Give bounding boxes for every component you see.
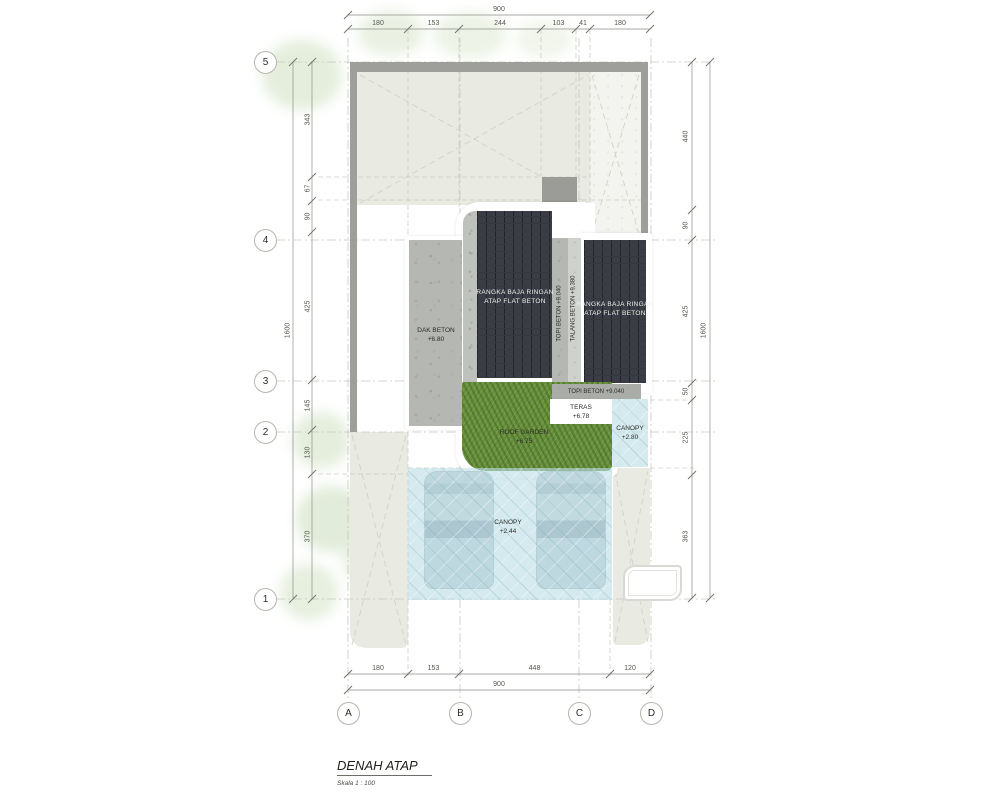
grid-col-b: B	[449, 702, 472, 725]
dim-right-overall: 1600	[700, 313, 709, 349]
dim-top-seg: 153	[408, 20, 459, 28]
dim-bottom-seg: 120	[610, 665, 650, 673]
garden-label-line2: +6.75	[484, 437, 564, 446]
grid-row-3: 3	[254, 370, 277, 393]
canopy-carport-label: CANOPY +2.44	[478, 518, 538, 536]
canopy-carport-line1: CANOPY	[478, 518, 538, 527]
dak-label-line2: +6.80	[406, 335, 466, 344]
dim-top-seg: 103	[541, 20, 576, 28]
dim-top-seg: 180	[590, 20, 650, 28]
roof2-label: RANGKA BAJA RINGAN ATAP FLAT BETON	[575, 300, 655, 318]
canopy-upper-line2: +2.80	[600, 433, 660, 442]
dim-top-seg: 41	[576, 20, 590, 28]
dim-top-overall: 900	[348, 6, 650, 14]
roof1-label-line2: ATAP FLAT BETON	[470, 297, 560, 306]
roof2-label-line2: ATAP FLAT BETON	[575, 309, 655, 318]
grid-col-c: C	[568, 702, 591, 725]
grid-row-2: 2	[254, 421, 277, 444]
canopy-upper-line1: CANOPY	[600, 424, 660, 433]
dim-bottom-overall: 900	[348, 681, 650, 689]
dim-left-seg: 130	[304, 435, 313, 471]
roof-plan-canvas: 900 180 153 244 103 41 180 180 153 448 1…	[0, 0, 1000, 800]
garden-label-line1: ROOF GARDEN	[484, 428, 564, 437]
dak-beton-label: DAK BETON +6.80	[406, 326, 466, 344]
dim-left-overall: 1600	[284, 313, 293, 349]
grid-col-a: A	[337, 702, 360, 725]
roof2-label-line1: RANGKA BAJA RINGAN	[575, 300, 655, 309]
teras-label-line2: +6.78	[551, 412, 611, 421]
dim-bottom-seg: 180	[348, 665, 408, 673]
teras-label: TERAS +6.78	[551, 403, 611, 421]
dim-top-seg: 180	[348, 20, 408, 28]
dim-bottom-seg: 153	[408, 665, 459, 673]
dim-left-seg: 370	[304, 519, 313, 555]
grid-row-4: 4	[254, 229, 277, 252]
dim-left-seg: 425	[304, 289, 313, 325]
canopy-carport-line2: +2.44	[478, 527, 538, 536]
dim-right-seg: 425	[682, 294, 691, 330]
dim-left-seg: 90	[304, 199, 313, 235]
drawing-title: DENAH ATAP	[337, 758, 432, 776]
topi-beton-bar-label: TOPI BETON +9.040	[551, 388, 641, 396]
dim-left-seg: 343	[304, 102, 313, 138]
dak-label-line1: DAK BETON	[406, 326, 466, 335]
roof-garden-label: ROOF GARDEN +6.75	[484, 428, 564, 446]
dim-top-seg: 244	[459, 20, 541, 28]
drawing-scale: Skala 1 : 100	[337, 780, 375, 787]
topi-beton-vertical-label: TOPI BETON +9.040	[556, 272, 565, 356]
dim-bottom-seg: 448	[459, 665, 610, 673]
dim-right-seg: 90	[682, 208, 691, 244]
grid-row-1: 1	[254, 588, 277, 611]
teras-label-line1: TERAS	[551, 403, 611, 412]
grid-row-5: 5	[254, 51, 277, 74]
talang-beton-vertical-label: TALANG BETON +9.380	[570, 267, 579, 351]
grid-col-d: D	[640, 702, 663, 725]
dim-right-seg: 50	[682, 374, 691, 410]
linework-dimensions	[0, 0, 1000, 800]
canopy-upper-label: CANOPY +2.80	[600, 424, 660, 442]
dim-left-seg: 145	[304, 388, 313, 424]
dim-right-seg: 363	[682, 519, 691, 555]
dim-right-seg: 440	[682, 119, 691, 155]
roof1-label-line1: RANGKA BAJA RINGAN	[470, 288, 560, 297]
roof1-label: RANGKA BAJA RINGAN ATAP FLAT BETON	[470, 288, 560, 306]
dim-right-seg: 225	[682, 420, 691, 456]
